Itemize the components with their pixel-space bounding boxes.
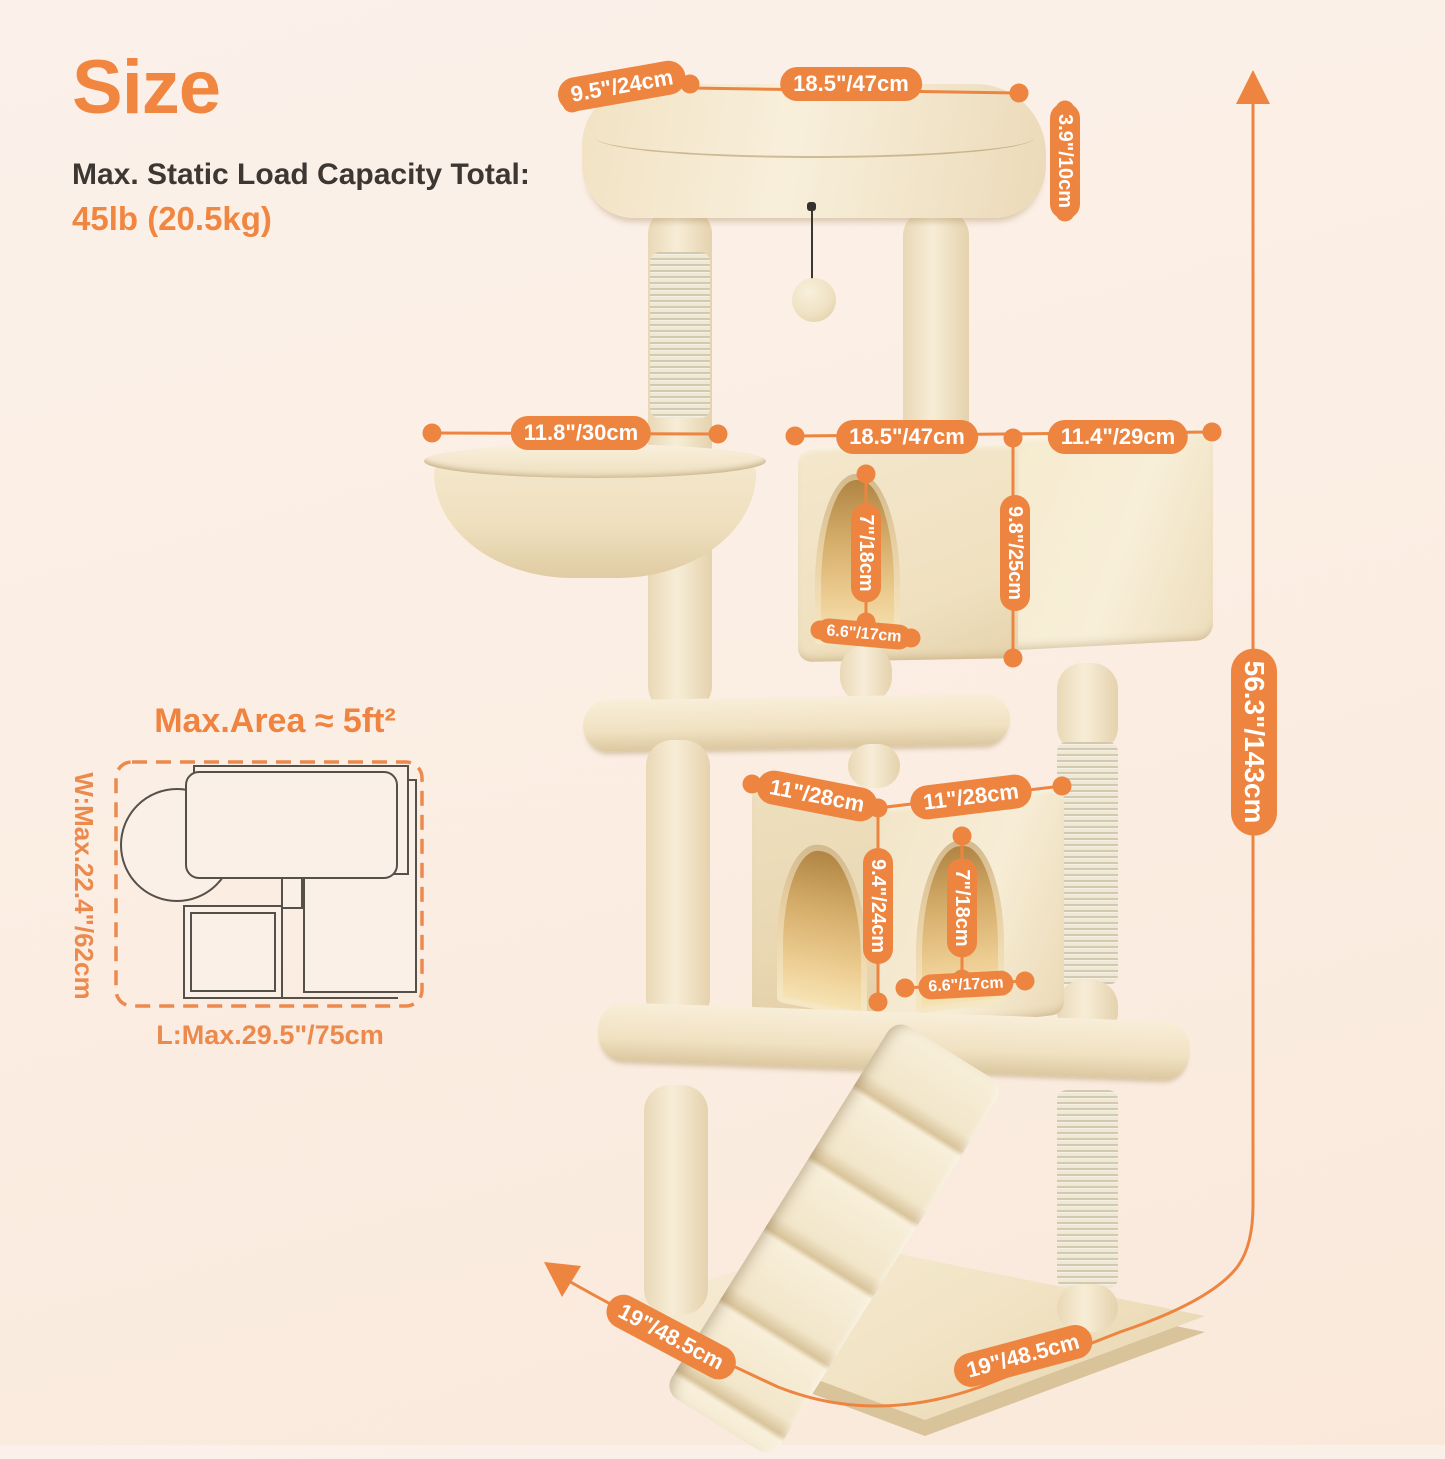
dimension-dots [423, 75, 1222, 1012]
footprint-square-inner [191, 913, 275, 991]
footprint-post-rect [282, 878, 302, 908]
dim-basket-diameter: 11.8"/30cm [511, 416, 651, 450]
arrow-left-icon [544, 1262, 581, 1297]
footprint-perch-rect [186, 772, 397, 878]
total-height-dimension-path [560, 100, 1253, 1406]
dim-total-height: 56.3"/143cm [1231, 649, 1277, 836]
dim-mid-door-height: 7"/18cm [851, 503, 881, 602]
footprint-floor-plan [121, 766, 416, 998]
dim-top-width: 18.5"/47cm [780, 67, 922, 101]
dimension-lines [432, 84, 1253, 1406]
dim-top-thickness: 3.9"/10cm [1050, 103, 1080, 219]
dim-low-door-height: 7"/18cm [947, 858, 977, 957]
dimension-arrowheads [544, 70, 1270, 1297]
dimension-lines-svg [0, 0, 1445, 1445]
dim-mid-condo-depth: 11.4"/29cm [1048, 420, 1188, 454]
dim-mid-condo-height: 9.8"/25cm [1000, 495, 1030, 611]
dim-mid-condo-width: 18.5"/47cm [836, 420, 978, 454]
arrow-up-icon [1236, 70, 1270, 104]
dim-low-door-width: 6.6"/17cm [918, 970, 1014, 1000]
product-size-infographic: { "header": { "title": "Size", "subtitle… [0, 0, 1445, 1445]
dim-low-condo-height: 9.4"/24cm [863, 848, 893, 964]
